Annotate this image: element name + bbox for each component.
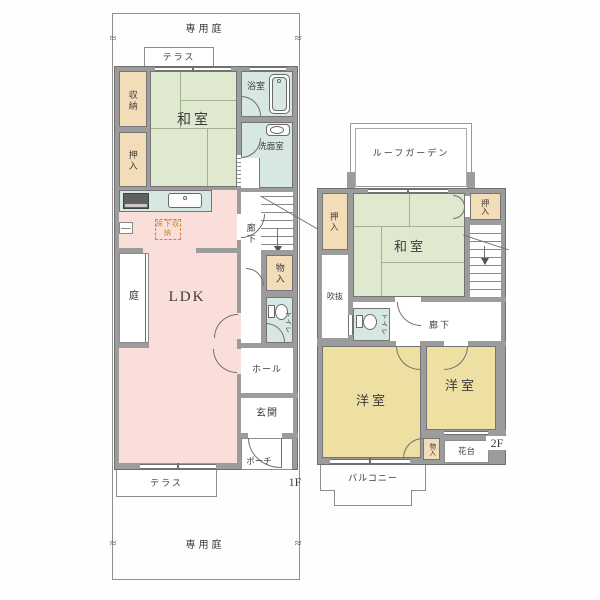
balcony-step-line (411, 490, 426, 491)
f1-bath-label: 浴室 (242, 81, 270, 92)
tatami-line (181, 100, 236, 101)
f1-hall-label: ホール (244, 364, 290, 375)
f2-toilet-label: トイレ (379, 310, 388, 340)
break-mark: ≈ (290, 31, 306, 45)
f1-storage-label: 収納 (127, 83, 138, 119)
f2-balcony-label: バルコニー (331, 473, 415, 484)
balcony-step-line (320, 490, 335, 491)
door-opening (237, 349, 241, 374)
tatami-line (207, 129, 208, 186)
f1-oshiire-label: 押入 (127, 143, 138, 179)
f1-porch-label: ポーチ (241, 456, 277, 466)
wall-stub (467, 172, 475, 189)
window (250, 67, 286, 71)
wall-hatch (237, 155, 241, 187)
f2-floor-label: 2F (486, 436, 508, 450)
f1-terrace-top-label: テラス (144, 52, 214, 63)
f1-toilet-label: トイレ (283, 308, 292, 338)
f2-oshiire-right-label: 押入 (480, 195, 490, 219)
stair-arrow-head (481, 258, 489, 265)
f1-garden-bottom-label: 専用庭 (112, 540, 298, 552)
window-tick (177, 463, 179, 470)
wall-stub (347, 172, 355, 189)
f2-oshiire-left-label: 押入 (329, 204, 339, 240)
f2-washitsu-label: 和室 (379, 239, 441, 255)
f1-terrace-bottom-label: テラス (116, 478, 217, 489)
stove-front (125, 204, 147, 207)
underfloor-storage-label: 床下収納 (156, 220, 180, 238)
toilet-bowl-icon (363, 314, 377, 330)
f2-corridor-label: 廊下 (418, 320, 462, 331)
f2-western-large-label: 洋室 (341, 393, 403, 409)
f2-roof-garden-label: ルーフガーデン (350, 148, 472, 159)
sink-bowl (270, 126, 284, 134)
door-opening (465, 196, 470, 217)
tatami-line (409, 194, 410, 226)
f2-balcony-lower (334, 491, 412, 506)
water-heater-detail (121, 225, 131, 231)
f2-void-label: 吹抜 (320, 292, 350, 302)
f1-floor-label: 1F (283, 475, 307, 489)
break-mark: ≈ (105, 31, 121, 45)
tatami-line (354, 226, 464, 227)
f1-side-garden-label: 庭 (119, 291, 149, 303)
floorplan-canvas: 専用庭 ≈ ≈ ≈ ≈ テラス 収納 押入 和室 浴室 洗面室 LDK 床下収納 (0, 0, 600, 600)
kitchen-tap (183, 196, 187, 200)
stair-arrow-line (277, 228, 278, 248)
toilet-tank-icon (268, 305, 275, 318)
wall (196, 248, 242, 253)
tatami-line (382, 262, 464, 263)
f1-washitsu-label: 和室 (163, 113, 225, 130)
bathtub-drain (277, 79, 281, 83)
f2-flower-stand-label: 花台 (444, 446, 489, 456)
window-tick (192, 66, 194, 72)
f1-garden-top-label: 専用庭 (112, 24, 298, 36)
toilet-tank-icon (356, 315, 363, 328)
f1-monoire-label: 物入 (274, 260, 285, 288)
f2-monoire-label: 物入 (427, 440, 435, 459)
window-tick (369, 458, 371, 465)
window (444, 431, 488, 435)
f2-western-small-label: 洋室 (430, 378, 492, 394)
f1-washroom-entry (241, 158, 260, 188)
f1-entrance-label: 玄関 (246, 408, 288, 420)
window-tick (407, 188, 409, 194)
entrance-door-leaf (281, 438, 282, 468)
wall (496, 341, 501, 435)
f1-ldk-label: LDK (155, 288, 219, 306)
wall (119, 343, 149, 348)
door-slit (348, 315, 353, 335)
